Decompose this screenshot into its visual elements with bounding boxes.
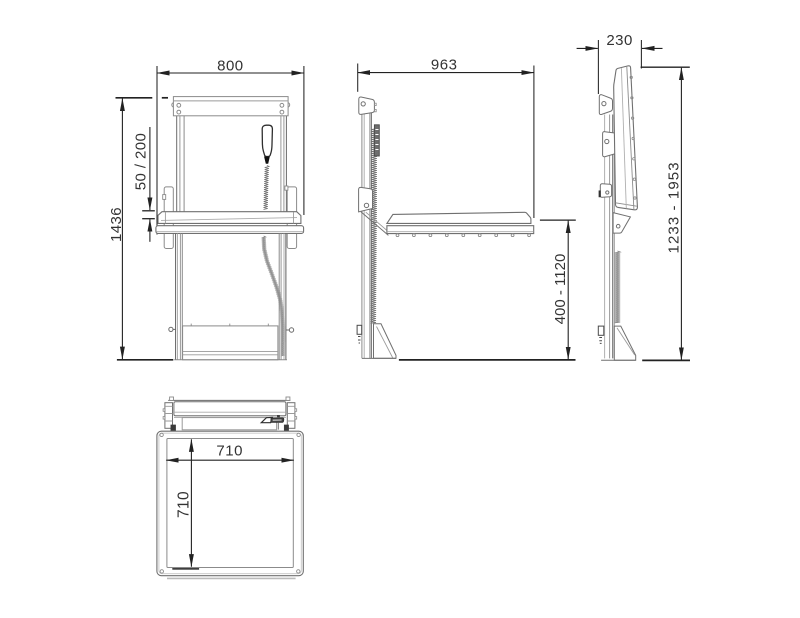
svg-text:50 / 200: 50 / 200 [133,133,150,190]
svg-text:230: 230 [606,32,633,49]
svg-text:800: 800 [217,57,244,74]
svg-text:400 - 1120: 400 - 1120 [552,254,569,325]
svg-text:710: 710 [216,443,243,460]
svg-text:1233 - 1953: 1233 - 1953 [666,161,683,253]
svg-text:710: 710 [175,491,192,518]
svg-text:1436: 1436 [108,207,125,242]
svg-text:963: 963 [431,57,458,74]
